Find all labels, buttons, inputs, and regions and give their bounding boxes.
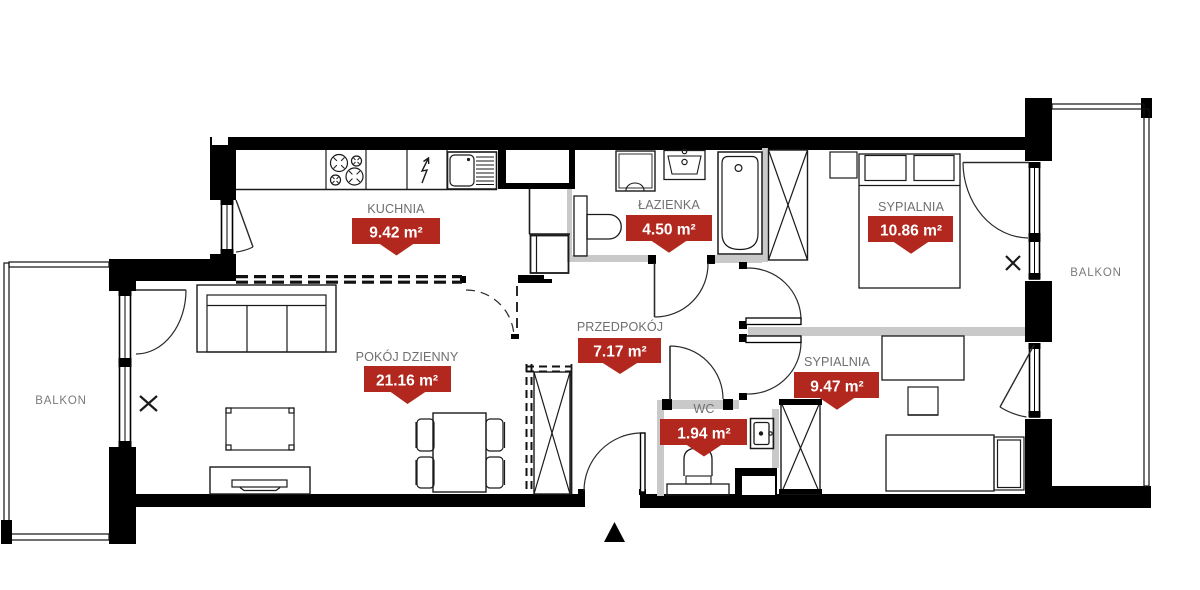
svg-text:POKÓJ DZIENNY: POKÓJ DZIENNY <box>356 349 459 364</box>
svg-text:KUCHNIA: KUCHNIA <box>367 202 425 216</box>
svg-text:PRZEDPOKÓJ: PRZEDPOKÓJ <box>577 319 663 334</box>
svg-text:1.94 m²: 1.94 m² <box>677 426 730 443</box>
svg-text:9.42 m²: 9.42 m² <box>369 225 422 242</box>
svg-text:9.47 m²: 9.47 m² <box>810 379 863 396</box>
svg-text:WC: WC <box>693 402 714 416</box>
svg-text:10.86 m²: 10.86 m² <box>880 223 942 240</box>
svg-text:SYPIALNIA: SYPIALNIA <box>804 355 870 369</box>
svg-text:SYPIALNIA: SYPIALNIA <box>878 200 944 214</box>
svg-text:BALKON: BALKON <box>1070 267 1121 279</box>
svg-text:21.16 m²: 21.16 m² <box>376 373 438 390</box>
svg-text:ŁAZIENKA: ŁAZIENKA <box>638 198 700 212</box>
svg-text:4.50 m²: 4.50 m² <box>642 222 695 239</box>
svg-text:BALKON: BALKON <box>35 395 86 407</box>
svg-text:7.17 m²: 7.17 m² <box>593 344 646 361</box>
